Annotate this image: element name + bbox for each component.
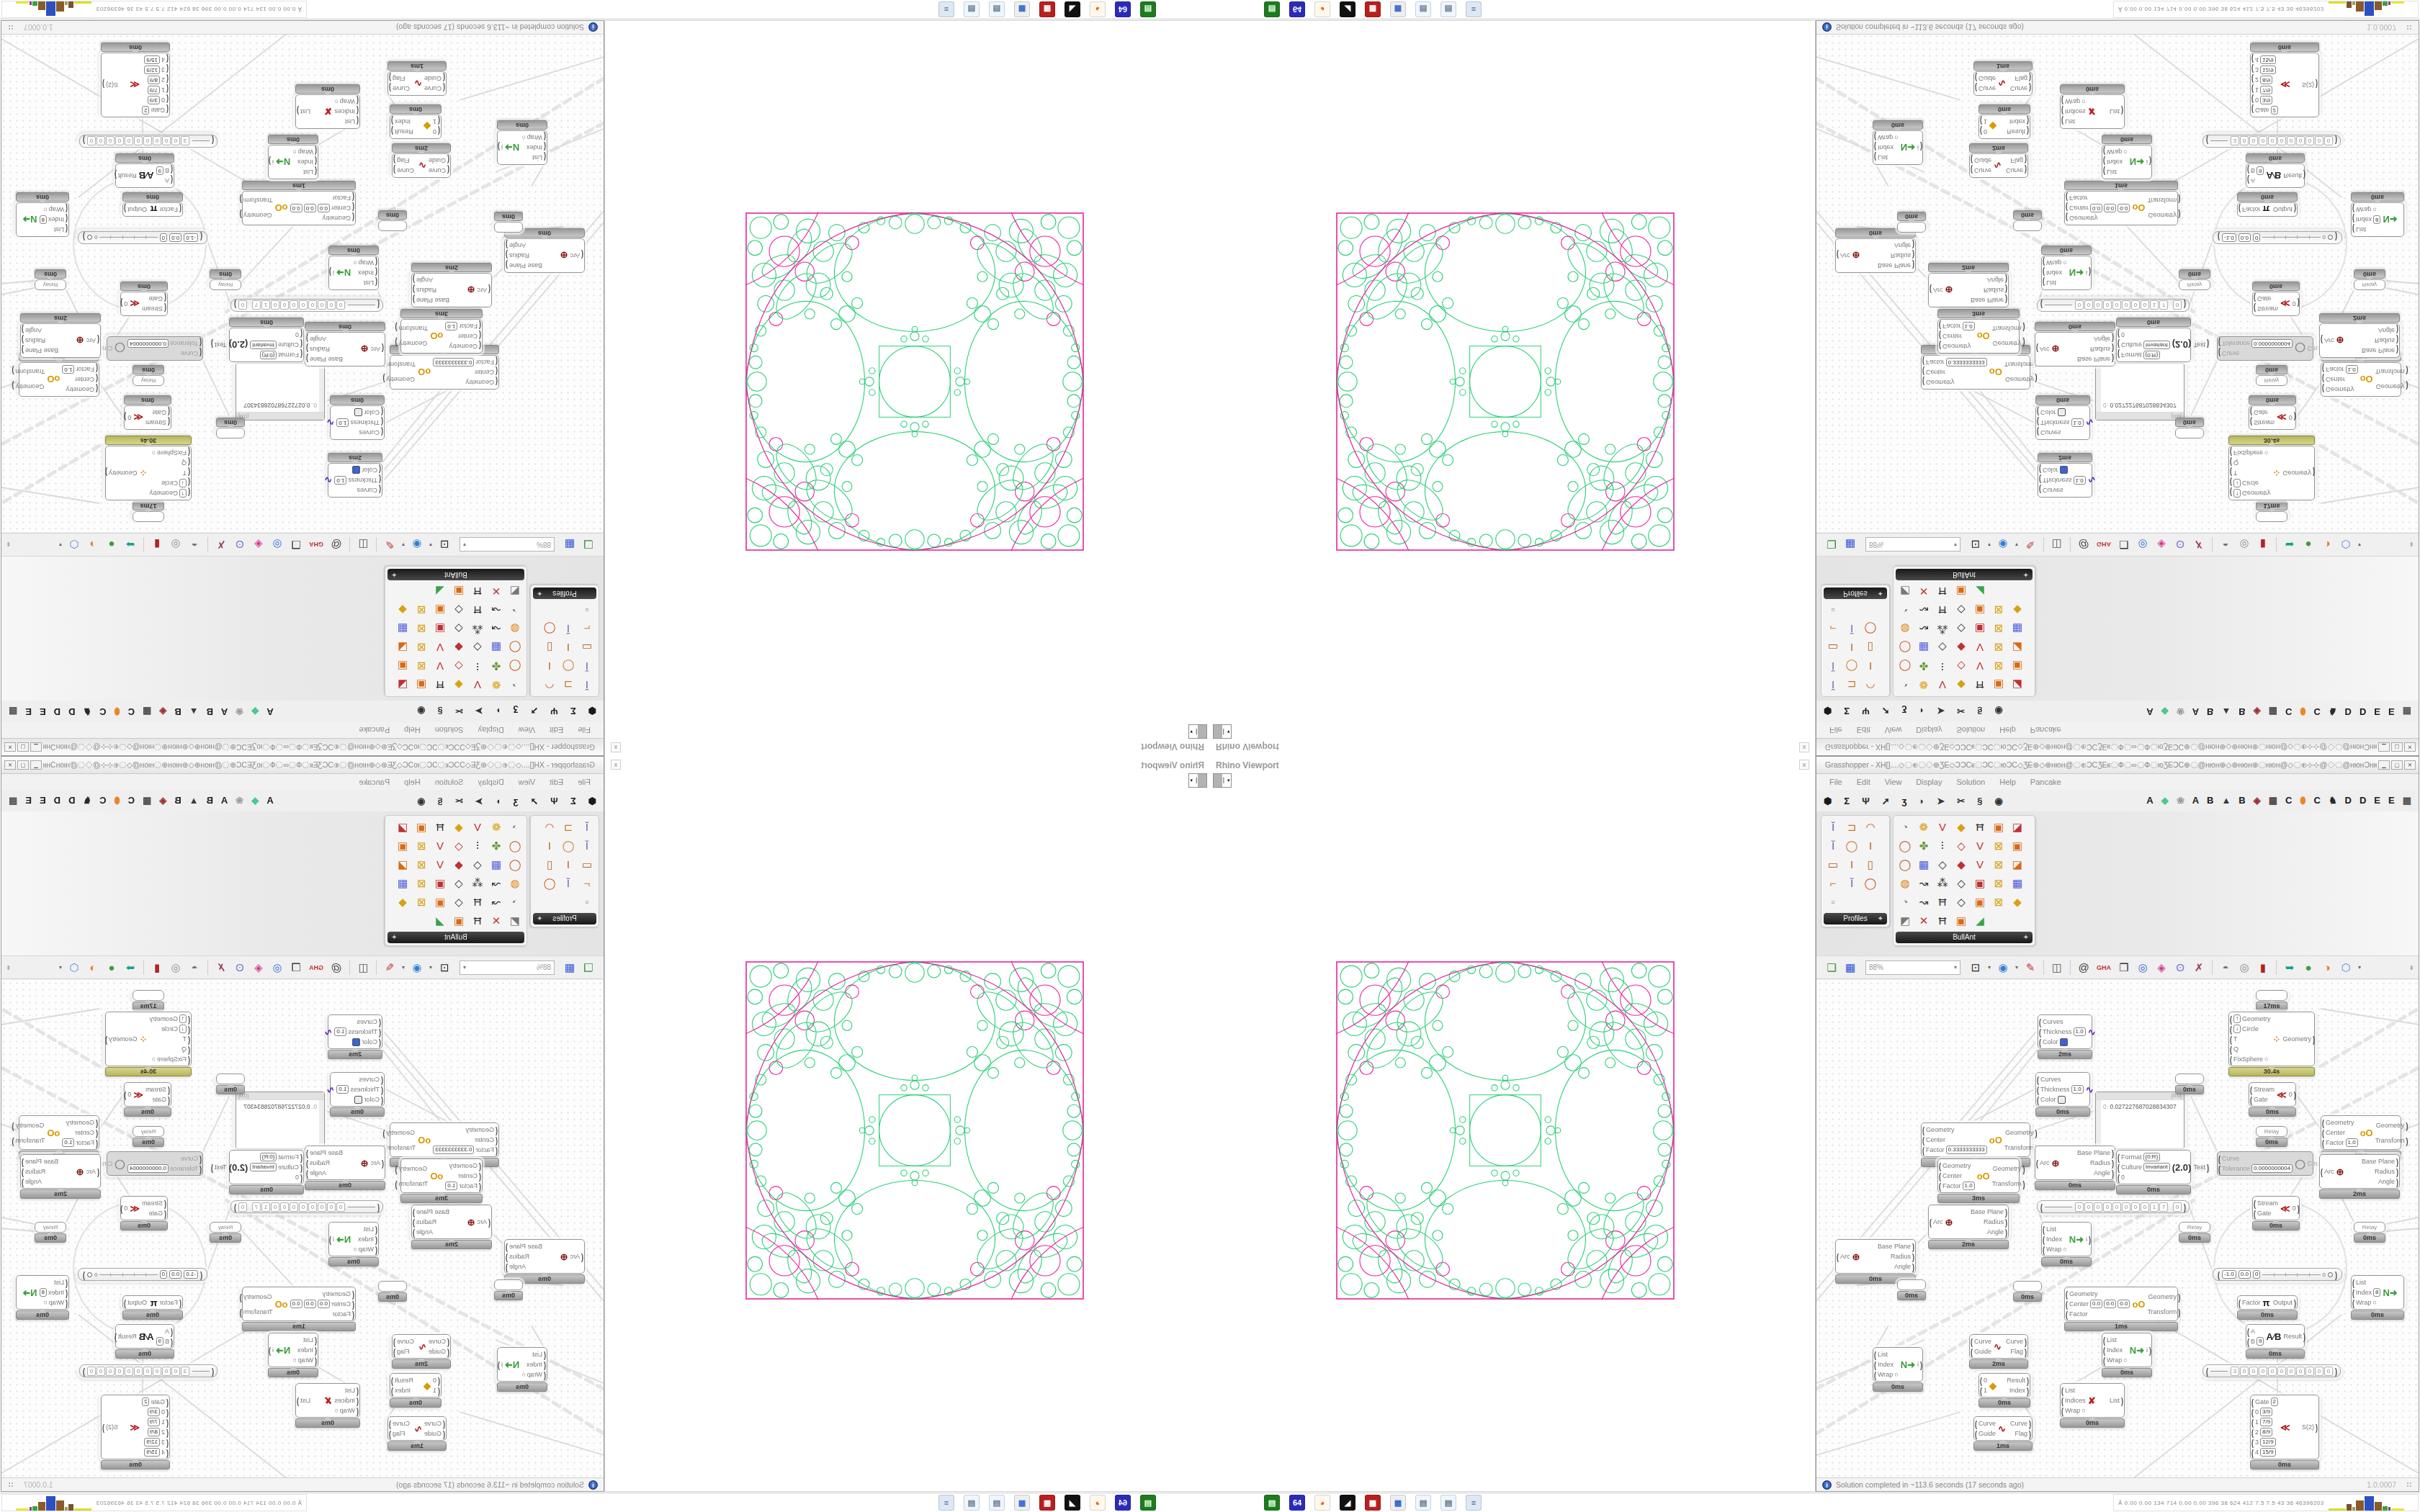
resize-grip[interactable]: [2406, 24, 2413, 31]
component-icon[interactable]: ⊠: [412, 874, 431, 893]
teal-ribbon-icon[interactable]: ➥: [2280, 961, 2299, 974]
component-icon[interactable]: ◆: [1952, 675, 1971, 694]
component-icon[interactable]: ✕: [1914, 582, 1933, 600]
disabled-circle-node[interactable]: (Curve(Tolerance0.0000000004◯Circle): [2217, 1151, 2313, 1176]
component-icon[interactable]: ⊐: [1842, 818, 1861, 837]
component-icon[interactable]: ◇: [449, 874, 468, 893]
relay-node[interactable]: 0ms: [494, 1279, 523, 1300]
stream-gate-node[interactable]: (Stream(Gate≪0)0ms: [124, 395, 171, 430]
annotate-icon[interactable]: @: [327, 539, 346, 551]
component-icon[interactable]: ▯: [540, 638, 559, 657]
tab-category-icon[interactable]: §: [438, 706, 443, 717]
zoom-dropdown-icon[interactable]: ▾: [1985, 964, 1994, 971]
relay-node[interactable]: 0ms: [2013, 210, 2042, 231]
zoom-select[interactable]: 88%▾: [1865, 538, 1960, 552]
component-icon[interactable]: Ħ: [1933, 912, 1952, 930]
node-canvas[interactable]: (Curves(Thickness1.0(Color∿2ms(Curves(Th…: [1816, 33, 2419, 532]
cull-index-node[interactable]: (List(Indices(Wrap○✘List)0ms: [295, 84, 360, 129]
toolbar-overflow-icon[interactable]: ⇟: [6, 541, 12, 549]
component-icon[interactable]: V: [431, 855, 449, 874]
tab-plugin[interactable]: D: [2345, 795, 2352, 806]
tab-plugin[interactable]: D: [2345, 706, 2352, 717]
window-capture-icon[interactable]: ❒: [2115, 539, 2133, 552]
loop-node[interactable]: (↑Geometry(↓Circle(T(Q(FixSphere○⁘Geomet…: [2228, 1012, 2315, 1076]
stream-gate-node[interactable]: (Stream(Gate≪0)0ms: [120, 1196, 168, 1230]
teal-ribbon-icon[interactable]: ➥: [121, 961, 140, 974]
component-icon[interactable]: ◠: [540, 675, 559, 694]
annotate-icon[interactable]: @: [2074, 539, 2093, 551]
menu-item-pancake[interactable]: Pancake: [2030, 778, 2061, 786]
tab-category-icon[interactable]: ✂: [1957, 706, 1965, 717]
gha-icon[interactable]: GHA: [305, 964, 327, 971]
blue-hexagon-icon[interactable]: ⬡: [65, 961, 84, 974]
digit-slider-node[interactable]: (00000000170): [2037, 299, 2190, 312]
tab-plugin[interactable]: C: [2314, 795, 2321, 806]
disabled-circle-node[interactable]: (Curve(Tolerance0.0000000004◯Circle): [107, 1151, 203, 1176]
component-icon[interactable]: ▣: [412, 818, 431, 837]
tab-category-icon[interactable]: ◗: [496, 796, 501, 806]
cull-index-node[interactable]: (List(Indices(Wrap○✘List)0ms: [295, 1383, 360, 1428]
component-icon[interactable]: Ħ: [1933, 600, 1952, 619]
list-item-node[interactable]: (List(Index(Wrap○N➜i)0ms: [328, 246, 379, 290]
drive-green-icon[interactable]: ▤: [1264, 1495, 1280, 1511]
stream-filter-node[interactable]: (Gate2(03/9(17/9(28/9(312/9(415/9≪S(2))0…: [101, 42, 170, 117]
component-icon[interactable]: ◆: [393, 893, 412, 912]
component-icon[interactable]: ◇: [1933, 638, 1952, 657]
stream-filter-node[interactable]: (Gate2(03/9(17/9(28/9(312/9(415/9≪S(2))0…: [2250, 42, 2319, 117]
tab-category-icon[interactable]: Ψ: [1862, 706, 1870, 717]
relay-node[interactable]: 0ms: [216, 418, 245, 438]
arc-node[interactable]: (Arc⊕Base Plane)Radius)Angle)0ms: [1835, 1239, 1916, 1284]
component-icon[interactable]: ▫: [1824, 600, 1842, 619]
component-icon[interactable]: V: [431, 837, 449, 855]
arc-node[interactable]: (Arc⊕Base Plane)Radius)Angle)2ms: [2319, 1154, 2400, 1199]
list-item-node[interactable]: (List(Index(Wrap○N➜i)0ms: [268, 135, 318, 179]
relay-node[interactable]: Relay0ms: [2256, 365, 2287, 386]
slider-node[interactable]: (-1.00.000): [78, 1268, 207, 1281]
component-icon[interactable]: Ħ: [1971, 675, 1989, 694]
magnifier-icon[interactable]: ◎: [268, 539, 287, 552]
component-icon[interactable]: ◪: [393, 818, 412, 837]
tab-category-icon[interactable]: ➤: [475, 796, 483, 806]
component-icon[interactable]: ◯: [540, 874, 559, 893]
arc-node[interactable]: (Arc⊕Base Plane)Radius)Angle)2ms: [20, 1154, 101, 1199]
component-icon[interactable]: I: [559, 855, 578, 874]
digit-slider-node[interactable]: (00000000170): [2037, 1200, 2190, 1213]
component-icon[interactable]: ◇: [449, 619, 468, 638]
format-node[interactable]: (Format{0:R}(CultureInvariant(0(2.0)Text…: [229, 1150, 304, 1194]
stream-gate-node[interactable]: (Stream(Gate≪0)0ms: [2249, 395, 2296, 430]
palette-footer[interactable]: Profiles✦: [533, 588, 596, 599]
palette-footer[interactable]: BullAnt✦: [387, 932, 524, 943]
ring-icon[interactable]: ◎: [2235, 961, 2254, 974]
preview-icon[interactable]: ◉: [1994, 539, 2012, 552]
flip-curve-node[interactable]: (Curve(Guide∿Curve)Flag)2ms: [392, 1334, 451, 1369]
tab-plugin[interactable]: D: [54, 795, 60, 806]
scale-xyz-node[interactable]: (Geometry(Center0.00.00.0(FactoroOGeomet…: [2064, 1287, 2178, 1331]
teal-ribbon-icon[interactable]: ➥: [2280, 539, 2299, 552]
component-icon[interactable]: ◇: [1933, 855, 1952, 874]
menu-item-edit[interactable]: Edit: [1857, 778, 1870, 786]
arc-node[interactable]: (Arc⊕Base Plane)Radius)Angle)0ms: [305, 1146, 385, 1190]
tab-plugin[interactable]: E: [40, 795, 46, 806]
viewport-layout-button[interactable]: ▏▾: [1213, 773, 1232, 788]
menu-item-solution[interactable]: Solution: [1956, 726, 1985, 734]
tab-plugin[interactable]: D: [54, 706, 60, 717]
arc-node[interactable]: (Arc⊕Base Plane)Radius)Angle)0ms: [1835, 228, 1916, 273]
cull-index-node[interactable]: (List(Indices(Wrap○✘List)0ms: [2060, 1383, 2125, 1428]
zoom-extents-icon[interactable]: ⊡: [435, 961, 454, 974]
grasshopper-titlebar[interactable]: Grasshopper - XH[]....◇〇⊕〇◇⊛ƷЕ◇ƆƆСк〇ƆС〇ю…: [1, 738, 604, 755]
magnifier-icon[interactable]: ◎: [268, 961, 287, 974]
firefox-icon[interactable]: ◕: [1314, 1495, 1330, 1511]
close-icon[interactable]: x: [1799, 760, 1809, 770]
arc-node[interactable]: (Arc⊕Base Plane)Radius)Angle)0ms: [504, 228, 585, 273]
component-icon[interactable]: ◇: [449, 657, 468, 675]
list-item-node[interactable]: (List(Index(Wrap○N➜i)0ms: [2041, 246, 2092, 290]
component-icon[interactable]: ◯: [1842, 837, 1861, 855]
component-icon[interactable]: ⊠: [1989, 619, 2008, 638]
relay-node[interactable]: 17ms: [133, 501, 164, 522]
inkscape-icon[interactable]: ◢: [1065, 1495, 1080, 1511]
open-file-icon[interactable]: ❏: [1822, 961, 1841, 974]
tab-plugin[interactable]: ❀: [236, 795, 243, 806]
window-capture-icon[interactable]: ❒: [287, 539, 305, 552]
remote-viewport-icon[interactable]: ◫: [2048, 539, 2066, 552]
tab-plugin[interactable]: B: [174, 706, 181, 717]
custom-preview-node[interactable]: (Curves(Thickness1.0(Color∿2ms: [2038, 453, 2092, 498]
component-icon[interactable]: Ħ: [431, 818, 449, 837]
component-icon[interactable]: Ĭ: [578, 818, 596, 837]
scale-node[interactable]: (Geometry(Center(Factor1.0oOGeometry)Tra…: [400, 1158, 483, 1203]
list-item-node[interactable]: (List(Index(Wrap○N➜i)0ms: [497, 120, 547, 165]
component-icon[interactable]: Ĭ: [1824, 657, 1842, 675]
division-node[interactable]: (A(B9A∕BResult)0ms: [2246, 153, 2305, 188]
component-icon[interactable]: ✤: [1914, 657, 1933, 675]
ring-icon[interactable]: ◎: [166, 539, 185, 552]
component-icon[interactable]: ◪: [2008, 638, 2027, 657]
tab-plugin[interactable]: C: [99, 706, 106, 717]
component-icon[interactable]: ◔: [506, 818, 524, 837]
preview-dropdown-icon[interactable]: ▾: [399, 964, 408, 971]
tab-plugin[interactable]: E: [25, 706, 32, 717]
tab-category-icon[interactable]: Σ: [1844, 706, 1850, 717]
flip-curve-node[interactable]: (Curve(Guide∿Curve)Flag)1ms: [387, 61, 447, 96]
tab-plugin[interactable]: ❀: [2177, 795, 2184, 806]
component-icon[interactable]: Ħ: [431, 675, 449, 694]
component-icon[interactable]: ⌐: [578, 619, 596, 638]
component-icon[interactable]: ▣: [1971, 619, 1989, 638]
flip-curve-node[interactable]: (Curve(Guide∿Curve)Flag)1ms: [387, 1416, 447, 1451]
component-icon[interactable]: ▦: [1914, 638, 1933, 657]
component-icon[interactable]: Ĭ: [1824, 675, 1842, 694]
tab-category-icon[interactable]: ʒ: [1902, 796, 1907, 806]
remote-viewport-icon[interactable]: ◫: [354, 961, 372, 974]
component-icon[interactable]: I: [1861, 837, 1880, 855]
component-icon[interactable]: ⌐: [1824, 619, 1842, 638]
package-icon[interactable]: ◈: [249, 961, 268, 974]
close-icon[interactable]: ✕: [2404, 742, 2416, 752]
component-icon[interactable]: ⁂: [468, 619, 487, 638]
component-icon[interactable]: ⊠: [412, 619, 431, 638]
component-icon[interactable]: ◯: [506, 837, 524, 855]
tab-category-icon[interactable]: ⬢: [588, 706, 596, 717]
scale-node[interactable]: (Geometry(Center(Factor1.0oOGeometry)Tra…: [19, 1115, 99, 1160]
component-icon[interactable]: ↝: [1914, 893, 1933, 912]
notepad-icon[interactable]: ▤: [1415, 1, 1431, 17]
tab-plugin[interactable]: C: [2314, 706, 2321, 717]
node-canvas[interactable]: (Curves(Thickness1.0(Color∿2ms(Curves(Th…: [1, 33, 604, 532]
scale-node[interactable]: (Geometry(Center(Factor1.0oOGeometry)Tra…: [1937, 309, 2020, 354]
flip-curve-node[interactable]: (Curve(Guide∿Curve)Flag)2ms: [392, 143, 451, 178]
component-icon[interactable]: ❁: [1914, 818, 1933, 837]
script-icon[interactable]: ≡: [938, 1, 954, 17]
menu-item-pancake[interactable]: Pancake: [359, 726, 390, 734]
menu-item-solution[interactable]: Solution: [435, 778, 464, 786]
magnifier-icon[interactable]: ◎: [2133, 961, 2152, 974]
preview-dropdown-icon[interactable]: ▾: [399, 541, 408, 548]
mesh-dropdown-icon[interactable]: ▾: [2355, 964, 2364, 971]
relay-node[interactable]: Relay0ms: [35, 269, 66, 290]
minimize-icon[interactable]: ▁: [30, 760, 42, 770]
component-icon[interactable]: ◇: [449, 837, 468, 855]
tab-category-icon[interactable]: ➚: [1882, 706, 1890, 717]
sketch-icon[interactable]: ✎: [2021, 539, 2040, 552]
list-item-node[interactable]: (List(Index(Wrap○N➜i)0ms: [1873, 120, 1923, 165]
custom-preview-node[interactable]: (Curves(Thickness1.0(Color∿2ms: [2038, 1014, 2092, 1059]
custom-preview-node[interactable]: (Curves(Thickness1.0(Color∿2ms: [328, 1014, 382, 1059]
pick-choose-node[interactable]: (0(1◆Result)Index)0ms: [390, 1373, 442, 1408]
component-icon[interactable]: ◍: [506, 619, 524, 638]
grasshopper-titlebar[interactable]: Grasshopper - XH[]....◇〇⊕〇◇⊛ƷЕ◇ƆƆСк〇ƆС〇ю…: [1, 757, 604, 774]
loop-node[interactable]: (↑Geometry(↓Circle(T(Q(FixSphere○⁘Geomet…: [105, 436, 192, 500]
component-icon[interactable]: ◪: [393, 855, 412, 874]
relay-node[interactable]: Relay0ms: [35, 1222, 66, 1243]
list-item-node[interactable]: (List(Index(Wrap○N➜i)0ms: [2102, 1333, 2152, 1377]
close-icon[interactable]: x: [611, 760, 621, 770]
component-icon[interactable]: Ĭ: [1842, 619, 1861, 638]
ring-icon[interactable]: ◎: [2235, 539, 2254, 552]
component-icon[interactable]: ↝: [1914, 600, 1933, 619]
tab-category-icon[interactable]: ʒ: [514, 796, 519, 806]
tab-category-icon[interactable]: ➚: [530, 706, 538, 717]
relay-node[interactable]: Relay0ms: [133, 1126, 164, 1147]
relay-node[interactable]: Relay0ms: [2354, 269, 2385, 290]
node-canvas[interactable]: (Curves(Thickness1.0(Color∿2ms(Curves(Th…: [1816, 980, 2419, 1479]
slider-node[interactable]: (-1.00.000): [78, 231, 207, 244]
component-icon[interactable]: ▦: [487, 638, 506, 657]
component-icon[interactable]: ◇: [1952, 874, 1971, 893]
tab-plugin[interactable]: ▲: [2221, 795, 2231, 806]
component-icon[interactable]: ▦: [393, 619, 412, 638]
minimize-icon[interactable]: ▁: [30, 742, 42, 752]
component-icon[interactable]: ⁂: [1933, 619, 1952, 638]
component-icon[interactable]: ✕: [487, 912, 506, 930]
component-icon[interactable]: ◇: [449, 600, 468, 619]
wires-icon[interactable]: ✗: [212, 539, 230, 552]
tab-plugin[interactable]: E: [40, 706, 46, 717]
component-icon[interactable]: V: [431, 657, 449, 675]
tab-plugin[interactable]: E: [25, 795, 32, 806]
tab-category-icon[interactable]: §: [438, 796, 443, 806]
script-icon[interactable]: ≡: [1466, 1495, 1482, 1511]
drive-green-icon[interactable]: ▤: [1140, 1, 1156, 17]
preview-icon[interactable]: ◉: [408, 961, 426, 974]
tab-plugin[interactable]: ♞: [83, 795, 91, 806]
component-icon[interactable]: ◢: [1971, 582, 1989, 600]
component-icon[interactable]: ◯: [1861, 619, 1880, 638]
save-file-icon[interactable]: ▦: [1841, 961, 1860, 974]
drive-green-icon[interactable]: ▤: [1140, 1495, 1156, 1511]
component-icon[interactable]: ◇: [449, 893, 468, 912]
tab-category-icon[interactable]: Ψ: [550, 796, 558, 806]
zoom-select[interactable]: 88%▾: [1865, 960, 1960, 975]
save-file-icon[interactable]: ▦: [1841, 539, 1860, 552]
component-icon[interactable]: ⊠: [1989, 837, 2008, 855]
relay-node[interactable]: 0ms: [378, 210, 407, 231]
tab-plugin[interactable]: E: [2374, 706, 2380, 717]
component-icon[interactable]: ▣: [2008, 657, 2027, 675]
tab-plugin[interactable]: A: [266, 795, 273, 806]
component-icon[interactable]: ▦: [2008, 619, 2027, 638]
menu-item-help[interactable]: Help: [1999, 726, 2016, 734]
pi-node[interactable]: (FactorπOutput)0ms: [122, 1295, 183, 1320]
tab-category-icon[interactable]: Σ: [570, 796, 576, 806]
component-icon[interactable]: ◩: [506, 912, 524, 930]
component-icon[interactable]: ⊠: [412, 893, 431, 912]
annotate-icon[interactable]: @: [327, 961, 346, 973]
tab-category-icon[interactable]: ⬢: [588, 796, 596, 806]
component-icon[interactable]: ▫: [1824, 893, 1842, 912]
component-icon[interactable]: ◯: [506, 638, 524, 657]
arc-node[interactable]: (Arc⊕Base Plane)Radius)Angle)2ms: [2319, 313, 2400, 358]
script-icon[interactable]: ≡: [938, 1495, 954, 1511]
tab-category-icon[interactable]: ✂: [1957, 796, 1965, 806]
custom-preview-node[interactable]: (Curves(Thickness1.0(Color∿0ms: [330, 1072, 385, 1117]
palette-footer[interactable]: Profiles✦: [1824, 913, 1887, 924]
tab-plugin[interactable]: ▩: [2403, 706, 2411, 717]
stream-gate-node[interactable]: (Stream(Gate≪0)0ms: [124, 1082, 171, 1117]
menu-item-help[interactable]: Help: [1999, 778, 2016, 786]
flip-curve-node[interactable]: (Curve(Guide∿Curve)Flag)1ms: [1973, 61, 2033, 96]
green-sphere-icon[interactable]: ●: [102, 961, 121, 973]
component-icon[interactable]: ▭: [578, 638, 596, 657]
arc-node[interactable]: (Arc⊕Base Plane)Radius)Angle)0ms: [305, 322, 385, 366]
relay-node[interactable]: 0ms: [2013, 1281, 2042, 1302]
zoom-dropdown-icon[interactable]: ▾: [1985, 541, 1994, 548]
scale-xyz-node[interactable]: (Geometry(Center0.00.00.0(FactoroOGeomet…: [242, 1287, 356, 1331]
menu-item-pancake[interactable]: Pancake: [2030, 726, 2061, 734]
menu-item-help[interactable]: Help: [404, 778, 421, 786]
component-icon[interactable]: ◍: [506, 874, 524, 893]
menu-item-help[interactable]: Help: [404, 726, 421, 734]
component-icon[interactable]: Ħ: [1933, 893, 1952, 912]
notepad2-icon[interactable]: ▤: [1440, 1, 1456, 17]
arc-node[interactable]: (Arc⊕Base Plane)Radius)Angle)2ms: [1928, 1205, 2009, 1249]
component-icon[interactable]: ◪: [2008, 675, 2027, 694]
component-icon[interactable]: ◔: [1896, 600, 1914, 619]
menu-item-view[interactable]: View: [519, 726, 536, 734]
component-icon[interactable]: ↝: [1914, 874, 1933, 893]
tab-plugin[interactable]: ❀: [2177, 706, 2184, 717]
tab-plugin[interactable]: ◆: [2161, 706, 2169, 717]
component-icon[interactable]: ✤: [487, 657, 506, 675]
maximize-icon[interactable]: ▢: [2391, 760, 2403, 770]
tab-plugin[interactable]: ▦: [2269, 795, 2277, 806]
tab-category-icon[interactable]: ✂: [455, 706, 463, 717]
relay-node[interactable]: 17ms: [2256, 501, 2287, 522]
component-icon[interactable]: ❁: [487, 675, 506, 694]
package-icon[interactable]: ◈: [249, 539, 268, 552]
component-icon[interactable]: ⁂: [1933, 874, 1952, 893]
component-icon[interactable]: ⊠: [412, 657, 431, 675]
component-icon[interactable]: ▭: [1824, 855, 1842, 874]
bulb-icon[interactable]: ʘ: [2171, 539, 2190, 551]
component-icon[interactable]: ▣: [449, 912, 468, 930]
tab-plugin[interactable]: ▦: [143, 795, 151, 806]
component-icon[interactable]: ◔: [1896, 893, 1914, 912]
viewport-layout-button[interactable]: ▏▾: [1213, 724, 1232, 739]
tab-plugin[interactable]: B: [207, 795, 213, 806]
script-icon[interactable]: ≡: [1466, 1, 1482, 17]
component-icon[interactable]: ◯: [1896, 657, 1914, 675]
component-icon[interactable]: ◯: [1896, 855, 1914, 874]
zoom-extents-icon[interactable]: ⊡: [1966, 539, 1985, 552]
ring-icon[interactable]: ◎: [166, 961, 185, 974]
component-icon[interactable]: ↝: [1914, 619, 1933, 638]
list-item-node[interactable]: (List(Index(Wrap○N➜i)0ms: [497, 1347, 547, 1392]
menu-item-display[interactable]: Display: [1916, 726, 1942, 734]
component-icon[interactable]: ◍: [1896, 874, 1914, 893]
floppy64-icon[interactable]: 64: [1289, 1, 1305, 17]
tab-category-icon[interactable]: Σ: [570, 706, 576, 717]
list-item-node[interactable]: (List(Index(Wrap○N➜i)0ms: [1873, 1347, 1923, 1392]
component-icon[interactable]: ✤: [1914, 837, 1933, 855]
component-icon[interactable]: Ĭ: [578, 657, 596, 675]
notepad2-icon[interactable]: ▤: [964, 1495, 980, 1511]
menu-item-edit[interactable]: Edit: [550, 726, 563, 734]
red-grid-icon[interactable]: ▦: [1039, 1495, 1055, 1511]
relay-node[interactable]: 0ms: [2175, 418, 2204, 438]
tab-plugin[interactable]: B: [2238, 795, 2245, 806]
component-icon[interactable]: V: [1971, 657, 1989, 675]
slider-node[interactable]: (-1.00.000): [2213, 231, 2342, 244]
menu-item-file[interactable]: File: [578, 726, 591, 734]
component-icon[interactable]: ▣: [393, 657, 412, 675]
tab-plugin[interactable]: ▩: [2403, 795, 2411, 806]
component-icon[interactable]: ◍: [1896, 619, 1914, 638]
zoom-dropdown-icon[interactable]: ▾: [426, 541, 435, 548]
component-icon[interactable]: ◆: [1952, 818, 1971, 837]
list-item-node[interactable]: (List(Index8(Wrap○N➜0ms: [2351, 192, 2404, 237]
digit-slider-node[interactable]: (30000000000): [2202, 135, 2341, 148]
tab-plugin[interactable]: E: [2388, 795, 2395, 806]
pick-choose-node[interactable]: (0(1◆Result)Index)0ms: [1978, 1373, 2030, 1408]
green-sphere-icon[interactable]: ●: [102, 539, 121, 551]
orange-sphere-icon[interactable]: ◑: [84, 539, 102, 551]
tab-category-icon[interactable]: Σ: [1844, 796, 1850, 806]
division-node[interactable]: (A(B9A∕BResult)0ms: [2246, 1324, 2305, 1359]
relay-node[interactable]: 0ms: [1897, 212, 1926, 233]
component-icon[interactable]: I: [540, 837, 559, 855]
gha-icon[interactable]: GHA: [2093, 964, 2115, 971]
component-icon[interactable]: ⁝: [1933, 657, 1952, 675]
component-icon[interactable]: ◯: [506, 855, 524, 874]
tab-plugin[interactable]: B: [174, 795, 181, 806]
component-icon[interactable]: ▣: [1971, 874, 1989, 893]
tab-plugin[interactable]: ◈: [2254, 795, 2261, 806]
component-icon[interactable]: ▣: [1989, 818, 2008, 837]
